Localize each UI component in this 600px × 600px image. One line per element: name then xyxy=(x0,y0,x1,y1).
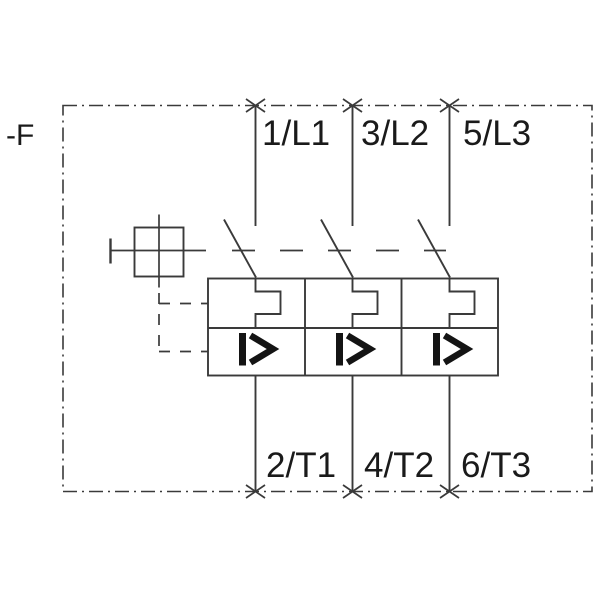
overcurrent-release-icon xyxy=(243,333,274,366)
overcurrent-release-icon xyxy=(437,333,468,366)
terminal-label-top-1: 1/L1 xyxy=(262,114,330,153)
device-tag: -F xyxy=(6,119,34,152)
terminal-label-bottom-2: 4/T2 xyxy=(364,446,434,485)
manual-operator-icon xyxy=(110,215,207,288)
contact-blade xyxy=(321,220,353,278)
terminal-label-top-3: 5/L3 xyxy=(463,114,531,153)
terminal-label-bottom-1: 2/T1 xyxy=(266,446,336,485)
schematic-page: -F xyxy=(0,0,600,600)
thermal-overload-release-icon xyxy=(256,279,281,329)
thermal-overload-release-icon xyxy=(353,279,378,329)
breaker-schematic: -F xyxy=(0,0,600,600)
enclosure-boundary xyxy=(63,106,592,492)
contact-blade xyxy=(418,220,450,278)
contact-blade xyxy=(224,220,256,278)
thermal-overload-release-icon xyxy=(450,279,475,329)
pole-1 xyxy=(224,99,281,498)
mechanical-linkage-icon xyxy=(159,251,446,352)
terminal-label-bottom-3: 6/T3 xyxy=(461,446,531,485)
overcurrent-release-icon xyxy=(340,333,371,366)
pole-2 xyxy=(321,99,378,498)
pole-3 xyxy=(418,99,475,498)
terminal-label-top-2: 3/L2 xyxy=(361,114,429,153)
